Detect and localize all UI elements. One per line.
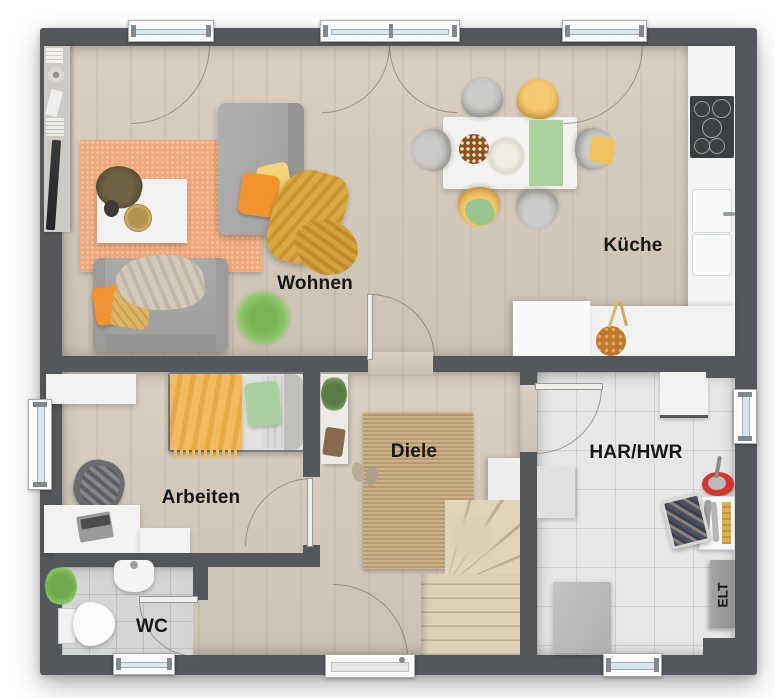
wall-hwr-west-lower xyxy=(520,452,537,655)
window-top-1 xyxy=(128,20,214,42)
plant-vase xyxy=(104,200,119,217)
wall-chimney-top xyxy=(706,358,735,378)
room-label-har-hwr: HAR/HWR xyxy=(589,442,682,464)
hwr-door-leaf xyxy=(535,383,603,390)
mop-bucket-inner xyxy=(708,476,726,490)
fern-plant xyxy=(233,288,293,348)
white-flowers xyxy=(486,136,526,176)
wall-wc-east xyxy=(193,565,208,600)
hall-bag xyxy=(322,427,346,458)
wall-living-south-left xyxy=(55,356,368,372)
wall-chimney-bottom xyxy=(703,638,735,655)
wall-office-south xyxy=(55,553,320,567)
faucet-icon xyxy=(723,212,735,216)
kitchen-cabinet-block xyxy=(513,301,590,357)
room-label-arbeiten: Arbeiten xyxy=(162,487,241,509)
burner-4 xyxy=(694,138,710,154)
window-right xyxy=(733,389,757,444)
window-top-3 xyxy=(562,20,647,42)
book-stack-2 xyxy=(46,118,64,136)
room-label-wc: WC xyxy=(136,616,168,638)
wc-faucet-icon xyxy=(130,561,138,569)
fruit-bowl xyxy=(596,326,626,356)
wc-door-leaf xyxy=(139,596,198,603)
washing-machine xyxy=(660,372,708,418)
chair-towel-yellow xyxy=(588,135,616,165)
decor-tray xyxy=(124,204,152,232)
room-label-kueche: Küche xyxy=(603,235,662,257)
hall-plant xyxy=(321,376,347,412)
sink-basin-2 xyxy=(692,234,732,276)
burner-1 xyxy=(694,101,710,117)
window-left xyxy=(28,399,52,490)
appliance xyxy=(537,466,575,518)
window-wc xyxy=(113,653,175,675)
window-top-2 xyxy=(320,20,460,42)
book-stack-1 xyxy=(46,48,63,63)
loveseat-armrest-right xyxy=(216,258,228,352)
dining-chair-gray-2 xyxy=(411,129,451,171)
wc-plant xyxy=(45,566,77,606)
blanket-fringe xyxy=(174,450,238,458)
burner-3 xyxy=(702,118,722,138)
floor-plan: Wohnen Küche Arbeiten Diele WC HAR/HWR E… xyxy=(0,0,775,698)
freezer-box xyxy=(553,582,611,653)
blanket-yellow-bed xyxy=(170,374,242,450)
food-bowl xyxy=(459,134,489,164)
table-runner-green xyxy=(529,120,563,186)
speaker-icon xyxy=(48,67,64,83)
front-door xyxy=(325,654,415,678)
room-label-diele: Diele xyxy=(391,441,437,463)
daybed-headboard xyxy=(284,374,304,450)
room-label-elt: ELT xyxy=(716,582,731,607)
wall-living-south-right xyxy=(433,356,735,372)
supply-box xyxy=(722,502,731,544)
office-sideboard xyxy=(46,374,136,404)
desk-return xyxy=(140,528,190,553)
loveseat-backrest xyxy=(93,334,228,352)
office-door-leaf xyxy=(307,478,313,547)
pillow-green-bed xyxy=(244,381,282,428)
burner-5 xyxy=(709,138,725,154)
side-entrance-door xyxy=(603,653,662,677)
burner-2 xyxy=(712,99,731,118)
room-label-wohnen: Wohnen xyxy=(277,273,353,295)
sink-basin-1 xyxy=(692,189,732,233)
living-door-leaf xyxy=(367,294,373,360)
stair-straight-steps xyxy=(421,574,520,655)
wall-office-east-upper xyxy=(303,370,320,477)
